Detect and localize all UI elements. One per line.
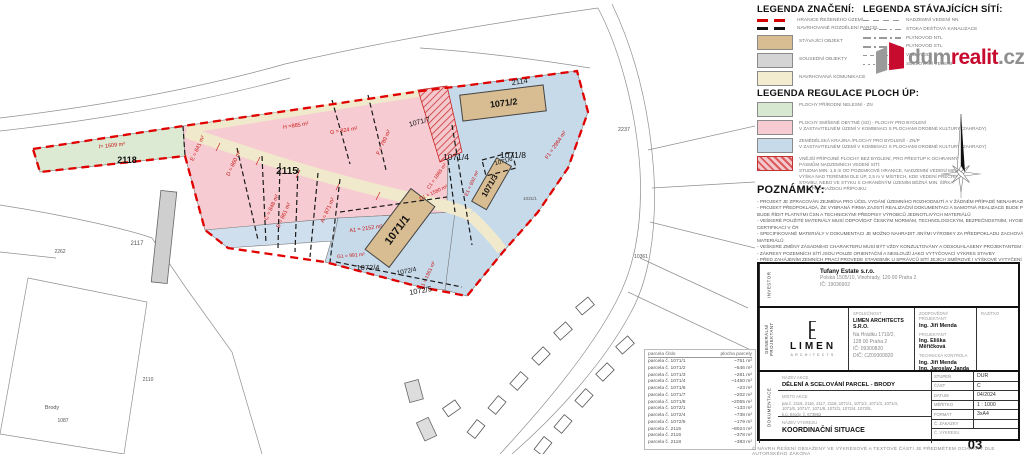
note-line: - SPECIFIKOVANÉ MATERIÁLY V DOKUMENTACI … (757, 231, 1023, 237)
label-parcel-1031-1: 1031/1 (523, 196, 537, 201)
note-line: - VEŠKERÉ ZMĚNY ZÁSADNÍHO CHARAKTERU MUS… (757, 244, 1023, 250)
dumrealit-wordmark: dumrealit.cz (908, 46, 1024, 70)
parcel-table-row: parcela č. 1072/4 ~738 m² (648, 413, 752, 420)
company-address: Na Hrádku 1710/2, 128 00 Praha 2 IČ: 093… (853, 332, 910, 360)
parcel-area: ~202 m² (734, 393, 752, 400)
doc-field-row: Č. ZAKÁZKY (932, 420, 1018, 430)
parcel-table-row: parcela č. 1071/1 ~751 m² (648, 359, 752, 366)
zoning-caption: PLOCHY PŘÍRODNÍ NELESNÍ - ZN (799, 102, 873, 108)
utility-line-swatch (863, 37, 901, 39)
project-name: DĚLENÍ A SCELOVÁNÍ PARCEL - BRODY (782, 382, 927, 388)
legend-swatch (757, 19, 791, 22)
label-parcel-1072-5: 1072/5 (408, 284, 432, 297)
people-cell: ZODPOVĚDNÝ PROJEKTANT Ing. Jiří Menda PR… (915, 308, 977, 370)
responsible-label: ZODPOVĚDNÝ PROJEKTANT (919, 311, 972, 321)
doc-field-row: ČÁST C (932, 382, 1018, 392)
title-block: INVESTOR Tufany Estate s.r.o. Polská 150… (757, 262, 1020, 441)
legend-regulace-title: LEGENDA REGULACE PLOCH ÚP: (757, 88, 1021, 99)
brand-realit: realit (951, 46, 998, 69)
label-parcel-2118: 2118 (117, 155, 137, 165)
project-site-cell: MÍSTO AKCE par.č. 2115, 2116, 2117, 2118… (778, 391, 931, 417)
doc-field-value: DUR (974, 373, 988, 379)
copyright-note: © NÁVRH ŘEŠENÍ OBSAŽENÝ VE VÝKRESOVÉ A T… (752, 446, 1024, 456)
parcel-area: ~546 m² (734, 366, 752, 373)
site-plan-map: 2118 I= 1609 m² 2115 2117 2114 H =865 m²… (0, 0, 755, 454)
brand-dum: dum (908, 46, 951, 69)
doc-side-label: DOKUMENTACE (759, 372, 778, 443)
parcel-number: parcela č. 1071/1 (648, 359, 686, 366)
label-parcel-1071-4: 1071/4 (443, 152, 469, 162)
legend-swatch (757, 71, 793, 86)
note-line: - PROJEKT PŘEDPOKLÁDÁ, ŽE VYBRANÁ FIRMA … (757, 205, 1023, 211)
company-label: SPOLEČNOST (853, 311, 910, 316)
doc-field-row: STUPEŇ DUR (932, 372, 1018, 382)
parcel-number: parcela č. 1071/6 (648, 386, 686, 393)
project-name-cell: NÁZEV AKCE DĚLENÍ A SCELOVÁNÍ PARCEL - B… (778, 372, 931, 391)
title-block-investor-row: INVESTOR Tufany Estate s.r.o. Polská 150… (759, 264, 1018, 308)
poznamky-title: POZNÁMKY: (757, 184, 1023, 196)
designer-name: Ing. Eliška Měřičková (919, 338, 972, 350)
brand-cz: .cz (998, 46, 1024, 69)
legend-item-label: HRANICE ŘEŠENÉHO ÚZEMÍ (797, 18, 863, 23)
dumrealit-logo[interactable]: dumrealit.cz (876, 42, 1024, 74)
zoning-swatch (757, 120, 793, 135)
utility-legend-item: NADZEMNÍ VEDENÍ NN (863, 18, 1021, 23)
title-block-doc-row: DOKUMENTACE NÁZEV AKCE DĚLENÍ A SCELOVÁN… (759, 372, 1018, 443)
parcel-area: ~179 m² (734, 420, 752, 427)
project-site: par.č. 2115, 2116, 2117, 2118, 1071/1, 1… (782, 401, 927, 418)
title-block-designer-row: GENERÁLNÍ PROJEKTANT LIMEN ARCHITECTS SP… (759, 308, 1018, 372)
doc-field-label: Č. ZAKÁZKY (932, 420, 974, 429)
parcel-table-rows: parcela č. 1071/1 ~751 m² parcela č. 107… (648, 359, 752, 447)
doc-field-row: DATUM 04/2024 (932, 391, 1018, 401)
parcel-number: parcela č. 1071/2 (648, 366, 686, 373)
drawing-name: KOORDINAČNÍ SITUACE (782, 427, 927, 434)
drawing-name-cell: NÁZEV VÝKRESU KOORDINAČNÍ SITUACE (778, 417, 931, 443)
label-place-brody: Brody (45, 405, 60, 411)
legend-item-label: SOUSEDNÍ OBJEKTY (799, 57, 847, 62)
doc-field-value: 04/2024 (974, 392, 996, 398)
parcel-number: parcela č. 1072/5 (648, 420, 686, 427)
project-site-label: MÍSTO AKCE (782, 394, 927, 399)
parcel-table-col2: plocha parcely (720, 352, 752, 357)
utility-label: NADZEMNÍ VEDENÍ NN (906, 18, 959, 23)
doc-main-col: NÁZEV AKCE DĚLENÍ A SCELOVÁNÍ PARCEL - B… (778, 372, 932, 443)
limen-subtitle: ARCHITECTS (791, 353, 836, 357)
designer-label: PROJEKTANT (919, 332, 972, 337)
parcel-area: ~738 m² (734, 413, 752, 420)
stamp-cell: RAZÍTKO (977, 308, 1018, 370)
label-parcel-2110: 2110 (143, 377, 154, 383)
parcel-table-row: parcela č. 1072/5 ~179 m² (648, 420, 752, 427)
doc-fields-col: STUPEŇ DUR ČÁST C DATUM 04/2024 MĚŘ (932, 372, 1018, 443)
stamp-label: RAZÍTKO (981, 311, 1014, 316)
label-parcel-2117: 2117 (131, 241, 145, 247)
designer-side-label: GENERÁLNÍ PROJEKTANT (759, 308, 778, 370)
label-parcel-1071-8: 1071/8 (500, 150, 526, 160)
doc-field-label: DATUM (932, 391, 974, 400)
label-parcel-2115: 2115 (276, 166, 298, 177)
parcel-table-col1: parcela číslo (648, 352, 675, 357)
zoning-swatch (757, 102, 793, 117)
doc-field-label: FORMÁT (932, 410, 974, 419)
doc-field-label: MĚŘÍTKO (932, 401, 974, 410)
limen-logo: LIMEN ARCHITECTS (782, 311, 844, 367)
drawing-number-label: Č. VÝKRESU (934, 430, 1016, 435)
neighbour-buildings-gray (405, 380, 437, 441)
limen-monogram-icon (808, 321, 818, 339)
limen-logo-cell: LIMEN ARCHITECTS (778, 308, 849, 370)
utility-line-swatch (863, 20, 901, 22)
doc-field-row: FORMÁT 3xA4 (932, 410, 1018, 420)
utility-legend-item: PLYNOVOD NTL (863, 36, 1021, 41)
drawing-name-label: NÁZEV VÝKRESU (782, 420, 927, 425)
investor-ic: IČ: 19036902 (820, 282, 1014, 289)
utility-label: STOKA DEŠŤOVÁ KANALIZACE (906, 27, 977, 32)
tech-control-label: TECHNICKÁ KONTROLA (919, 353, 972, 358)
legend-item-label: STÁVAJÍCÍ OBJEKT (799, 39, 843, 44)
doc-field-value: C (974, 383, 981, 389)
responsible-name: Ing. Jiří Menda (919, 323, 972, 329)
utility-legend-item: STOKA DEŠŤOVÁ KANALIZACE (863, 27, 1021, 32)
project-name-label: NÁZEV AKCE (782, 375, 927, 380)
parcel-number: parcela č. 1072/4 (648, 413, 686, 420)
parcel-area: ~751 m² (734, 359, 752, 366)
parcel-area: ~23 m² (737, 386, 752, 393)
parcel-table-row: parcela č. 1071/6 ~23 m² (648, 386, 752, 393)
label-parcel-10361: 10361 (634, 254, 648, 260)
company-name: LIMEN ARCHITECTS S.R.O. (853, 318, 910, 330)
label-parcel-1087: 1087 (57, 418, 68, 424)
zoning-swatch (757, 156, 793, 171)
legend-siti-title: LEGENDA STÁVAJÍCÍCH SÍTÍ: (863, 4, 1021, 15)
zoning-swatch (757, 138, 793, 153)
parcel-area: ~383 m² (734, 440, 752, 447)
utility-label: PLYNOVOD NTL (906, 36, 943, 41)
legend-item-label: NAVRHOVANÁ KOMUNIKACE (799, 75, 865, 80)
label-parcel-1072-4a: 1072/4 (357, 263, 380, 272)
doc-fields: STUPEŇ DUR ČÁST C DATUM 04/2024 MĚŘ (932, 372, 1018, 429)
doc-field-label: STUPEŇ (932, 372, 974, 381)
legend-swatch (757, 27, 791, 30)
parcel-table-row: parcela č. 1071/7 ~202 m² (648, 393, 752, 400)
doc-field-value: 1 : 1000 (974, 402, 996, 408)
parcel-number: parcela č. 2118 (648, 440, 681, 447)
utility-line-swatch (863, 29, 901, 31)
investor-cell: Tufany Estate s.r.o. Polská 1505/10, Vin… (778, 264, 1018, 306)
doc-field-row: MĚŘÍTKO 1 : 1000 (932, 401, 1018, 411)
limen-name: LIMEN (790, 341, 836, 352)
parcel-table-row: parcela č. 1071/2 ~546 m² (648, 366, 752, 373)
note-line: - VEŠKERÉ POUŽITÉ MATERIÁLY MUSÍ ODPOVÍD… (757, 218, 1023, 224)
neighbour-building-strip (151, 190, 177, 283)
label-parcel-2237: 2237 (618, 127, 630, 133)
legend-swatch (757, 53, 793, 68)
investor-side-label: INVESTOR (759, 264, 778, 306)
tech-control-name2: Ing. Jaroslav Janda (919, 366, 972, 372)
parcel-table-header: parcela číslo plocha parcely (648, 352, 752, 358)
dumrealit-house-icon (876, 42, 904, 74)
parcel-table-row: parcela č. 2118 ~383 m² (648, 440, 752, 447)
parcel-number: parcela č. 1071/7 (648, 393, 686, 400)
legend-swatch (757, 35, 793, 50)
doc-field-value: 3xA4 (974, 411, 989, 417)
label-parcel-2262: 2262 (54, 249, 65, 255)
parcel-area-table: parcela číslo plocha parcely parcela č. … (644, 349, 756, 450)
investor-address: Polská 1505/10, Vinohrady, 120 00 Praha … (820, 275, 1014, 282)
doc-field-label: ČÁST (932, 382, 974, 391)
company-cell: SPOLEČNOST LIMEN ARCHITECTS S.R.O. Na Hr… (849, 308, 915, 370)
